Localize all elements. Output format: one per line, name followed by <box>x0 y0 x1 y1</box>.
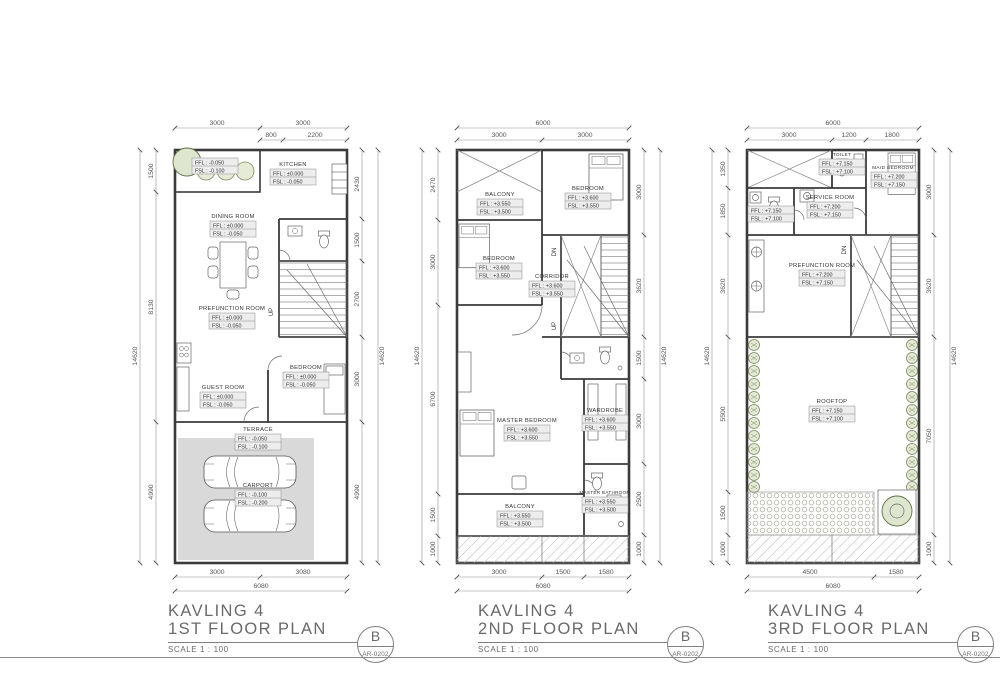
svg-text:FSL : -0.050: FSL : -0.050 <box>203 402 232 408</box>
first-floor-plan-drawing: UP FFL : -0.050 FSL : -0.100 KITCHEN FFL… <box>110 100 410 600</box>
sheet-number: AR-0202 <box>668 647 703 662</box>
dim-label: 2200 <box>307 132 322 139</box>
room-name-master-bathroom: MASTER BATHROOM <box>579 490 630 495</box>
title-rule <box>768 642 988 643</box>
room-name-rooftop: ROOFTOP <box>817 399 848 405</box>
svg-text:FFL : -0.050: FFL : -0.050 <box>238 436 267 442</box>
room-name-prefunction: PREFUNCTION ROOM <box>789 263 855 269</box>
svg-text:FSL : +7.150: FSL : +7.150 <box>874 182 905 188</box>
dim-label: 6000 <box>535 120 550 127</box>
svg-text:FSL : +3.550: FSL : +3.550 <box>568 203 599 209</box>
dim-label: 3000 <box>636 413 643 428</box>
svg-text:FFL : +3.600: FFL : +3.600 <box>568 195 599 201</box>
sheet-border-line <box>0 657 1000 658</box>
room-name-toilet-front: TOILET <box>833 152 852 158</box>
level-label-master-bedroom: FFL : +3.600 FSL : +3.550 <box>504 425 550 441</box>
svg-text:FFL : +3.600: FFL : +3.600 <box>585 417 616 423</box>
room-name-bedroom-middle: BEDROOM <box>483 256 515 262</box>
dim-label: 2470 <box>430 177 437 192</box>
sheet-number: AR-0202 <box>358 647 393 662</box>
svg-text:FFL : +7.200: FFL : +7.200 <box>802 272 833 278</box>
svg-text:FSL : +3.550: FSL : +3.550 <box>532 291 563 297</box>
svg-text:FSL : +3.500: FSL : +3.500 <box>480 209 511 215</box>
dim-label: 3620 <box>720 278 727 293</box>
dim-label: 1500 <box>720 505 727 520</box>
svg-text:FSL : +7.100: FSL : +7.100 <box>751 216 782 222</box>
dim-label: 4990 <box>148 484 155 499</box>
dim-label: 1000 <box>926 541 933 556</box>
svg-text:FSL : -0.050: FSL : -0.050 <box>212 323 241 329</box>
dim-label: 14620 <box>951 346 958 365</box>
stairs-up-label: UP <box>552 322 558 330</box>
dim-label: 1000 <box>636 541 643 556</box>
level-label-dining: FFL : ±0.000 FSL : -0.050 <box>210 221 256 237</box>
dim-label: 1800 <box>884 132 899 139</box>
dim-label: 2430 <box>354 176 361 191</box>
dim-label: 6000 <box>825 120 840 127</box>
title-rule <box>168 642 388 643</box>
room-name-bedroom-front: BEDROOM <box>572 186 604 192</box>
svg-text:FFL : ±0.000: FFL : ±0.000 <box>212 315 242 321</box>
svg-text:FFL : +3.600: FFL : +3.600 <box>507 427 538 433</box>
dim-label: 1000 <box>720 541 727 556</box>
sheet-number: AR-0202 <box>958 647 993 662</box>
dim-label: 3620 <box>636 278 643 293</box>
svg-text:FFL : ±0.000: FFL : ±0.000 <box>286 374 316 380</box>
level-label-toilet-front: FFL : +7.150 FSL : +7.100 <box>819 159 865 175</box>
room-name-kitchen: KITCHEN <box>279 162 307 168</box>
dim-label: 3000 <box>295 120 310 127</box>
dim-label: 1580 <box>598 569 613 576</box>
dim-label: 3000 <box>926 184 933 199</box>
svg-text:FSL : -0.100: FSL : -0.100 <box>195 168 224 174</box>
dim-label: 3080 <box>295 569 310 576</box>
svg-text:FSL : -0.050: FSL : -0.050 <box>213 231 242 237</box>
dim-label: 3000 <box>636 184 643 199</box>
dim-label: 1200 <box>841 132 856 139</box>
dim-label: 800 <box>265 132 277 139</box>
dim-label: 3620 <box>926 278 933 293</box>
level-label-service: FFL : +7.200 FSL : +7.150 <box>807 202 853 218</box>
svg-text:FSL : +7.100: FSL : +7.100 <box>812 416 843 422</box>
revision-letter: B <box>668 627 703 647</box>
dim-label: 1580 <box>888 569 903 576</box>
svg-text:FSL : +3.550: FSL : +3.550 <box>479 273 510 279</box>
dim-label: 14620 <box>379 346 386 365</box>
dim-label: 8130 <box>148 299 155 314</box>
dim-label: 1500 <box>354 232 361 247</box>
revision-letter: B <box>958 627 993 647</box>
svg-text:FSL : +7.150: FSL : +7.150 <box>810 212 841 218</box>
room-name-guest: GUEST ROOM <box>202 385 245 391</box>
dim-label: 3000 <box>209 120 224 127</box>
room-name-dining: DINING ROOM <box>211 214 254 220</box>
svg-text:FFL : -0.100: FFL : -0.100 <box>238 492 267 498</box>
dim-label: 5500 <box>720 406 727 421</box>
titleblock-3rd-floor: KAVLING 4 3RD FLOOR PLAN SCALE 1 : 100 B… <box>768 602 996 654</box>
room-name-service: SERVICE ROOM <box>806 195 855 201</box>
svg-text:FFL : +3.550: FFL : +3.550 <box>585 499 616 505</box>
stairs-dn-label: DN <box>552 248 558 257</box>
dim-label: 6080 <box>535 583 550 590</box>
p3-stairs: DN <box>842 235 919 337</box>
svg-text:FSL : -0.050: FSL : -0.050 <box>286 382 315 388</box>
svg-text:FFL : -0.050: FFL : -0.050 <box>195 160 224 166</box>
level-label-carport: FFL : -0.100 FSL : -0.200 <box>235 490 281 506</box>
level-label-rooftop: FFL : +7.150 FSL : +7.100 <box>809 406 855 422</box>
title-rule <box>478 642 698 643</box>
room-name-corridor: CORRIDOR <box>535 274 569 280</box>
svg-text:FSL : +3.500: FSL : +3.500 <box>585 507 616 513</box>
level-label-balcony-top: FFL : +3.550 FSL : +3.500 <box>477 199 523 215</box>
dim-label: 3000 <box>577 132 592 139</box>
dim-label: 3000 <box>781 132 796 139</box>
p3-rooftop-planting <box>747 340 919 564</box>
level-label-master-bathroom: FFL : +3.550 FSL : +3.500 <box>582 497 628 513</box>
dim-label: 3000 <box>354 371 361 386</box>
dim-label: 3000 <box>209 569 224 576</box>
dim-label: 1500 <box>148 163 155 178</box>
level-label-balcony-rear: FFL : +3.550 FSL : +3.500 <box>497 511 543 527</box>
dim-label: 1850 <box>720 203 727 218</box>
dim-label: 7050 <box>926 428 933 443</box>
project-title: KAVLING 4 <box>768 602 996 620</box>
dim-label: 14620 <box>661 346 668 365</box>
p1-stairs: UP <box>269 261 347 337</box>
svg-text:FFL : +7.200: FFL : +7.200 <box>874 174 905 180</box>
svg-text:FFL : +3.550: FFL : +3.550 <box>500 513 531 519</box>
level-label-corridor: FFL : +3.600 FSL : +3.550 <box>529 281 575 297</box>
svg-text:FSL : +3.500: FSL : +3.500 <box>500 521 531 527</box>
room-name-wardrobe: WARDROBE <box>587 408 623 414</box>
dim-label: 3000 <box>430 254 437 269</box>
dim-label: 1000 <box>430 541 437 556</box>
second-floor-plan-drawing: DN UP BALCONY FFL : +3.550 FSL : +3.500 … <box>392 100 692 600</box>
room-name-maid-bedroom: MAID BEDROOM <box>872 165 914 171</box>
level-label-prefunction: FFL : ±0.000 FSL : -0.050 <box>209 313 255 329</box>
svg-text:FSL : -0.050: FSL : -0.050 <box>273 179 302 185</box>
dim-label: 14620 <box>704 346 711 365</box>
level-label-maid-bedroom: FFL : +7.200 FSL : +7.150 <box>871 172 917 188</box>
svg-text:FFL : +3.600: FFL : +3.600 <box>532 283 563 289</box>
dim-label: 4500 <box>802 569 817 576</box>
third-floor-plan-drawing: DN TOILET FFL : +7.150 FSL : +7.100 <box>682 100 982 600</box>
dim-label: 2500 <box>636 491 643 506</box>
level-label-bedroom: FFL : ±0.000 FSL : -0.050 <box>283 372 329 388</box>
room-name-carport: CARPORT <box>243 483 273 489</box>
room-name-prefunction: PREFUNCTION ROOM <box>199 306 265 312</box>
svg-text:FFL : ±0.000: FFL : ±0.000 <box>273 171 303 177</box>
dim-label: 1350 <box>720 161 727 176</box>
room-name-balcony-top: BALCONY <box>485 192 515 198</box>
dim-label: 6080 <box>253 583 268 590</box>
level-label-bedroom-middle: FFL : +3.600 FSL : +3.550 <box>476 263 522 279</box>
dim-label: 1500 <box>555 569 570 576</box>
level-label-terrace: FFL : -0.050 FSL : -0.100 <box>235 434 281 450</box>
dim-label: 14620 <box>414 346 421 365</box>
svg-text:FFL : +7.150: FFL : +7.150 <box>751 208 782 214</box>
level-label-bedroom-front: FFL : +3.600 FSL : +3.550 <box>565 193 611 209</box>
level-label-prefunction: FFL : +7.200 FSL : +7.150 <box>799 270 845 286</box>
dim-label: 1500 <box>636 350 643 365</box>
dim-label: 3000 <box>491 132 506 139</box>
room-name-master-bedroom: MASTER BEDROOM <box>497 418 557 424</box>
level-label-planter: FFL : -0.050 FSL : -0.100 <box>192 158 238 174</box>
project-title: KAVLING 4 <box>478 602 706 620</box>
svg-text:FFL : +7.200: FFL : +7.200 <box>810 204 841 210</box>
svg-text:FSL : +3.550: FSL : +3.550 <box>507 435 538 441</box>
level-label-toilet-side: FFL : +7.150 FSL : +7.100 <box>748 206 794 222</box>
svg-text:FSL : +3.550: FSL : +3.550 <box>585 425 616 431</box>
dim-label: 3000 <box>491 569 506 576</box>
dim-label: 6700 <box>430 391 437 406</box>
svg-text:FSL : -0.200: FSL : -0.200 <box>238 500 267 506</box>
svg-text:FSL : +7.100: FSL : +7.100 <box>822 169 853 175</box>
titleblock-2nd-floor: KAVLING 4 2ND FLOOR PLAN SCALE 1 : 100 B… <box>478 602 706 654</box>
dim-label: 2700 <box>354 291 361 306</box>
svg-text:FFL : +7.150: FFL : +7.150 <box>822 161 853 167</box>
svg-text:FFL : +3.600: FFL : +3.600 <box>479 265 510 271</box>
level-label-wardrobe: FFL : +3.600 FSL : +3.550 <box>582 415 628 431</box>
revision-letter: B <box>358 627 393 647</box>
svg-text:FFL : ±0.000: FFL : ±0.000 <box>203 394 233 400</box>
dim-label: 6080 <box>825 583 840 590</box>
room-name-terrace: TERRACE <box>243 427 273 433</box>
level-label-guest: FFL : ±0.000 FSL : -0.050 <box>200 392 246 408</box>
dim-label: 4990 <box>354 484 361 499</box>
project-title: KAVLING 4 <box>168 602 396 620</box>
room-name-balcony-rear: BALCONY <box>505 504 535 510</box>
svg-text:FSL : +7.150: FSL : +7.150 <box>802 280 833 286</box>
level-label-kitchen: FFL : ±0.000 FSL : -0.050 <box>270 169 316 185</box>
svg-text:FFL : +3.550: FFL : +3.550 <box>480 201 511 207</box>
svg-text:FFL : +7.150: FFL : +7.150 <box>812 408 843 414</box>
svg-text:FFL : ±0.000: FFL : ±0.000 <box>213 223 243 229</box>
titleblock-1st-floor: KAVLING 4 1ST FLOOR PLAN SCALE 1 : 100 B… <box>168 602 396 654</box>
svg-text:FSL : -0.100: FSL : -0.100 <box>238 444 267 450</box>
dim-label: 1500 <box>430 507 437 522</box>
room-name-bedroom: BEDROOM <box>290 365 322 371</box>
stairs-up-label: UP <box>269 308 275 316</box>
dim-label: 14620 <box>132 346 139 365</box>
stairs-dn-label: DN <box>842 246 848 255</box>
